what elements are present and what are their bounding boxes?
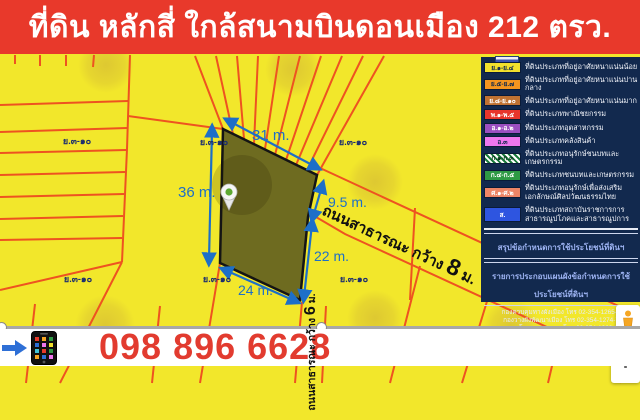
- legend-row: ย.๑-ย.๔ที่ดินประเภทที่อยู่อาศัยหนาแน่นน้…: [484, 62, 638, 73]
- contact-bar: 098 896 6628: [0, 329, 640, 366]
- color-swatch: ศ.๑-ศ.๒: [484, 187, 521, 198]
- zone-label: ย.๓-๑๐: [340, 272, 368, 286]
- zone-label: ย.๓-๑๐: [203, 272, 231, 286]
- zone-label: ย.๓-๑๐: [64, 272, 92, 286]
- color-swatch: ก.๑-ก.๓: [484, 153, 521, 164]
- legend-row: ย.๘-ย.๑๐ที่ดินประเภทที่อยู่อาศัยหนาแน่นม…: [484, 95, 638, 106]
- measurement-right: 22 m.: [314, 248, 349, 264]
- color-swatch: อ.๑-อ.๒: [484, 123, 521, 134]
- seal-watermark-on-plot: [212, 155, 272, 215]
- header-banner: ที่ดิน หลักสี่ ใกล้สนามบินดอนเมือง 212 ต…: [0, 0, 640, 54]
- zone-label: ย.๓-๑๐: [200, 135, 228, 149]
- zone-label: ย.๓-๑๐: [339, 135, 367, 149]
- color-swatch: พ.๑-พ.๕: [484, 109, 521, 120]
- measurement-bottom: 24 m.: [238, 282, 273, 298]
- zone-label: ย.๓-๑๐: [63, 134, 91, 148]
- legend-row: อ.๑-อ.๒ที่ดินประเภทอุตสาหกรรม: [484, 123, 638, 134]
- legend-row: ก.๑-ก.๓ที่ดินประเภทอนุรักษ์ชนบทและเกษตรก…: [484, 150, 638, 167]
- legend-row: ศ.๑-ศ.๒ที่ดินประเภทอนุรักษ์เพื่อส่งเสริม…: [484, 183, 638, 202]
- legend-banner-1: สรุปข้อกำหนดการใช้ประโยชน์ที่ดินฯ: [484, 233, 638, 259]
- panel-divider: [484, 228, 638, 230]
- color-swatch: ย.๕-ย.๗: [484, 79, 521, 90]
- color-swatch: ย.๑-ย.๔: [484, 62, 521, 73]
- phone-number: 098 896 6628: [99, 326, 331, 368]
- legend-row: ย.๕-ย.๗ที่ดินประเภทที่อยู่อาศัยหนาแน่นปา…: [484, 76, 638, 93]
- legend-row: ก.๔-ก.๕ที่ดินประเภทชนบทและเกษตรกรรม: [484, 170, 638, 181]
- zoning-legend-panel: ย.๑-ย.๔ที่ดินประเภทที่อยู่อาศัยหนาแน่นน้…: [481, 57, 640, 302]
- legend-row: พ.๑-พ.๕ที่ดินประเภทพาณิชยกรรม: [484, 109, 638, 120]
- color-swatch: ก.๔-ก.๕: [484, 170, 521, 181]
- listing-title: ที่ดิน หลักสี่ ใกล้สนามบินดอนเมือง 212 ต…: [29, 4, 611, 51]
- color-swatch: ย.๘-ย.๑๐: [484, 95, 521, 106]
- measurement-top: 31 m.: [252, 127, 290, 144]
- legend-row: ส.ที่ดินประเภทสถาบันราชการการสาธารณูปโภค…: [484, 205, 638, 225]
- contact-line: กองควบคุมทางผังเมือง โทร 02-354-1265-7: [484, 309, 638, 317]
- legend-rows: ย.๑-ย.๔ที่ดินประเภทที่อยู่อาศัยหนาแน่นน้…: [484, 62, 638, 359]
- arrow-right-icon: [2, 338, 28, 358]
- legend-banner-2: รายการประกอบแผนผังข้อกำหนดการใช้ประโยชน์…: [484, 262, 638, 306]
- road-label-6m: ถนนสาธารณะ กว้าง 6 ม.: [302, 293, 320, 410]
- color-swatch: อ.๓: [484, 136, 521, 147]
- smartphone-icon: [31, 331, 57, 365]
- color-swatch: ส.: [484, 207, 521, 222]
- page: ที่ดิน หลักสี่ ใกล้สนามบินดอนเมือง 212 ต…: [0, 0, 640, 420]
- measurement-left: 36 m.: [178, 184, 216, 201]
- legend-row: อ.๓ที่ดินประเภทคลังสินค้า: [484, 136, 638, 147]
